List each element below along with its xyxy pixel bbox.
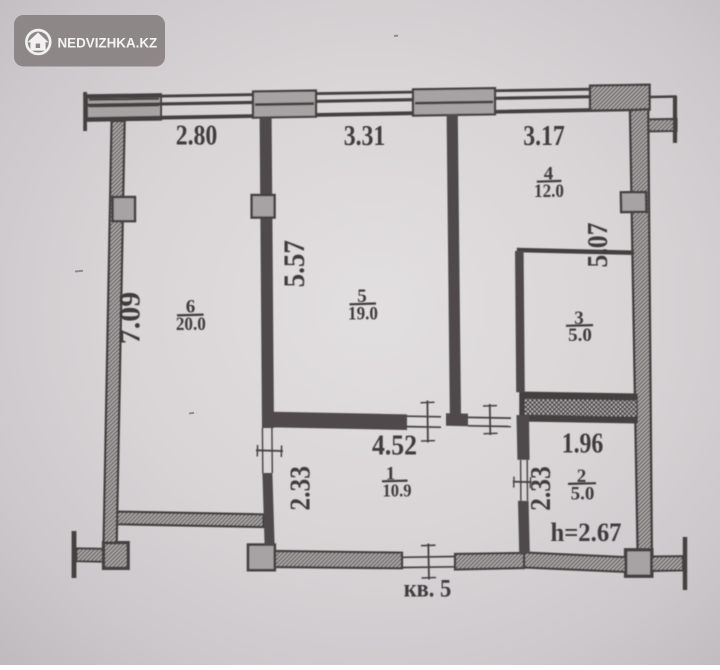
svg-text:2.33: 2.33 [525,466,557,511]
svg-text:5.57: 5.57 [279,240,312,287]
svg-text:4.52: 4.52 [372,430,417,461]
svg-text:2.33: 2.33 [284,466,316,511]
svg-text:20.0: 20.0 [176,313,206,334]
svg-text:5.0: 5.0 [568,325,592,346]
svg-text:10.9: 10.9 [383,481,412,501]
svg-text:h=2.67: h=2.67 [551,518,622,547]
svg-text:12.0: 12.0 [534,180,564,201]
svg-text:2.80: 2.80 [176,120,218,151]
svg-text:19.0: 19.0 [348,303,378,324]
svg-text:7.09: 7.09 [114,292,147,345]
svg-text:кв. 5: кв. 5 [404,575,452,602]
svg-text:5.07: 5.07 [582,222,613,267]
svg-text:3.17: 3.17 [523,120,565,151]
svg-text:5.0: 5.0 [571,483,595,504]
svg-text:3.31: 3.31 [344,120,386,151]
svg-text:NEDVIZHKA.KZ: NEDVIZHKA.KZ [58,35,158,50]
svg-text:1.96: 1.96 [562,428,604,459]
